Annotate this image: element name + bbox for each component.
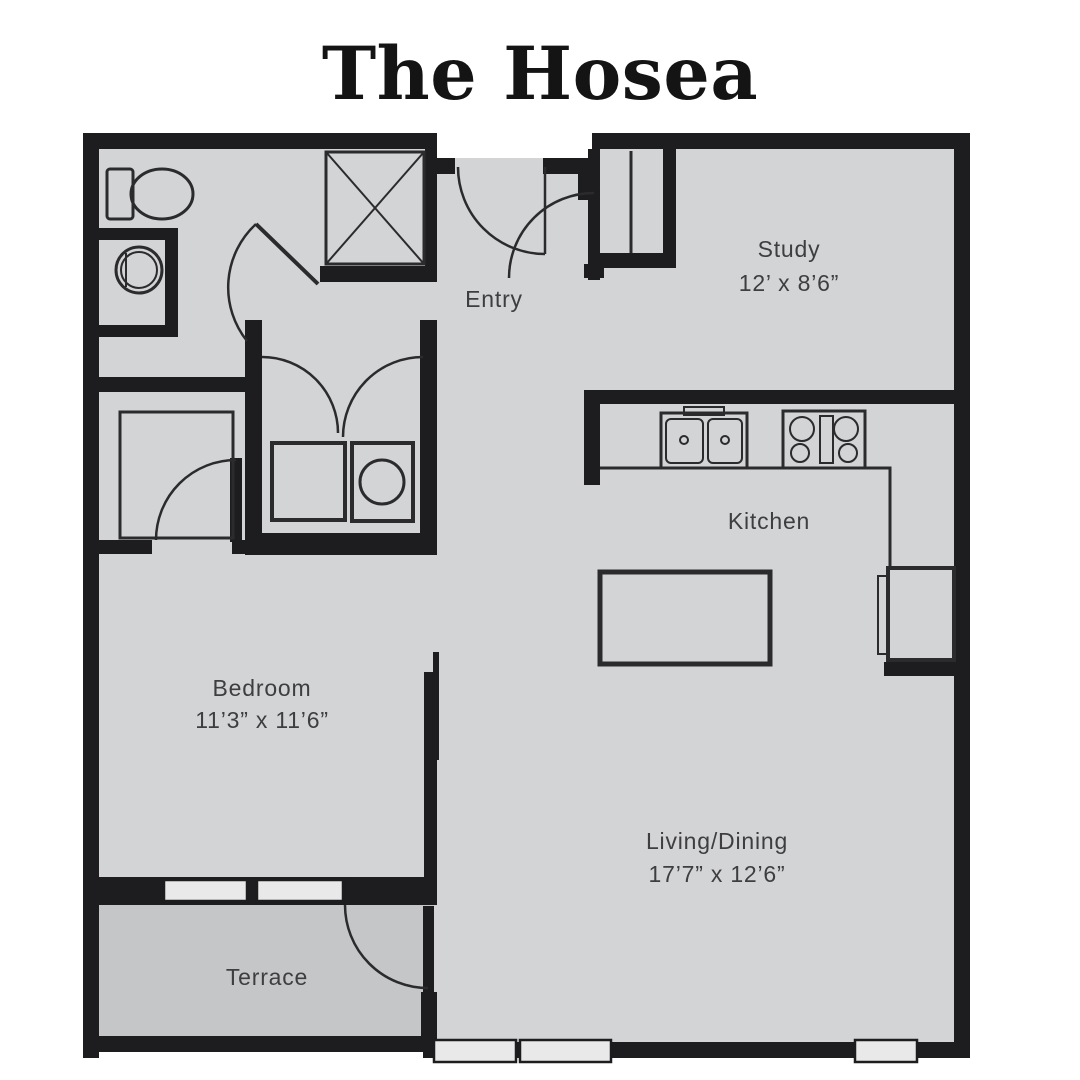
room-dims-living: 17’7” x 12’6”: [649, 861, 786, 887]
wall-left: [83, 133, 99, 1058]
sliding-door-panel: [433, 652, 439, 760]
wall-vanity-right: [165, 228, 178, 337]
wall-top-left: [83, 133, 437, 149]
wall-shower-bottom: [320, 266, 437, 282]
wall-vanity-top: [99, 228, 167, 240]
wall-study-south: [584, 390, 954, 404]
wall-bath-south: [83, 377, 247, 392]
window-bedroom-2: [257, 880, 343, 901]
floor-plan-page: The Hosea Entry Study 12’ x 8’6” Kitchen…: [0, 0, 1080, 1080]
room-label-entry: Entry: [465, 286, 523, 312]
room-label-bedroom: Bedroom: [213, 675, 312, 701]
room-label-terrace: Terrace: [226, 964, 308, 990]
room-label-study: Study: [758, 236, 821, 262]
wall-bedroom-door-left: [95, 540, 152, 554]
room-label-kitchen: Kitchen: [728, 508, 810, 534]
room-label-living: Living/Dining: [646, 828, 788, 854]
wall-kitchen-west: [584, 390, 600, 485]
room-dims-study: 12’ x 8’6”: [739, 270, 839, 296]
entry-recess-exterior: [437, 112, 592, 158]
wall-fridge-stub: [884, 662, 954, 676]
wall-laundry-right: [420, 320, 437, 555]
wall-vanity-bottom: [99, 325, 178, 337]
room-dims-bedroom: 11’3” x 11’6”: [195, 707, 329, 733]
wall-laundry-bottom: [245, 533, 437, 555]
wall-right: [954, 133, 970, 1058]
window-living-1: [434, 1040, 516, 1062]
floor-plan-canvas: The Hosea Entry Study 12’ x 8’6” Kitchen…: [0, 0, 1080, 1080]
window-bedroom-1: [164, 880, 247, 901]
wall-terrace-right: [421, 992, 437, 1042]
wall-top-right: [592, 133, 970, 149]
page-title: The Hosea: [322, 31, 758, 117]
wall-entry-closet-bottom: [588, 253, 676, 268]
wall-shower-right: [425, 149, 437, 282]
wall-entry-recess-left: [437, 158, 455, 174]
window-living-3: [855, 1040, 917, 1062]
wall-entry-recess-right: [543, 158, 578, 174]
window-living-2: [520, 1040, 611, 1062]
terrace-door-leaf: [423, 906, 434, 992]
wall-bottom-terrace: [83, 1036, 433, 1052]
wall-laundry-left: [245, 320, 262, 555]
wall-entry-closet-right: [663, 149, 676, 268]
